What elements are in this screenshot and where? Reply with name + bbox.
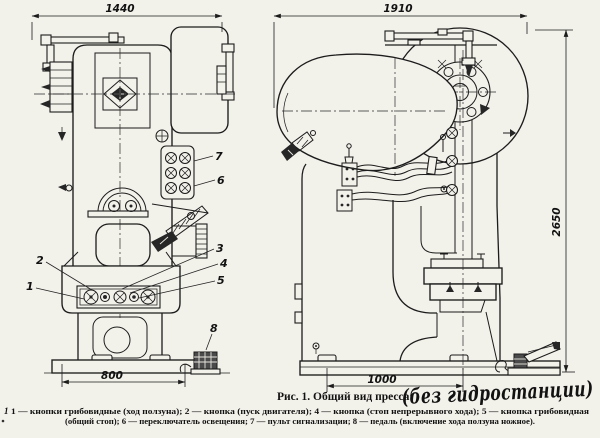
pedestal-front <box>78 313 162 360</box>
body-left-edge <box>295 164 319 363</box>
control-panel <box>77 286 160 308</box>
dim-label-1000: 1000 <box>367 374 396 386</box>
dim-label-1440: 1440 <box>105 3 134 15</box>
callout-5: 5 <box>217 274 225 287</box>
side-view-drawing <box>277 28 560 375</box>
adjusting-screw <box>172 224 207 258</box>
callout-8: 8 <box>210 322 218 335</box>
figure-caption: Рис. 1. Общий вид пресса: <box>277 391 413 403</box>
c-frame <box>393 200 502 361</box>
front-view-drawing <box>34 27 236 374</box>
caption-block: Рис. 1. Общий вид пресса: (без гидростан… <box>2 376 594 426</box>
callout-3: 3 <box>216 242 224 255</box>
callout-1: 1 <box>26 280 34 293</box>
legend-line-1: 1 — кнопки грибовидные (ход ползуна); 2 … <box>11 406 589 416</box>
scanned-manual-page: 1440 1910 2650 800 1000 2 <box>0 0 600 438</box>
callout-4: 4 <box>219 257 228 270</box>
handwritten-note: (без гидростанции) <box>401 376 594 409</box>
signal-console <box>161 146 194 199</box>
dim-label-2650: 2650 <box>551 207 563 236</box>
callout-7: 7 <box>215 150 223 163</box>
dim-label-1910: 1910 <box>383 3 412 15</box>
press-general-view-drawing: 1440 1910 2650 800 1000 2 <box>0 0 600 438</box>
cooling-fins <box>40 62 72 112</box>
legend-line-2: (общий стоп); 6 — переключатель освещени… <box>65 416 535 426</box>
dim-overall-height: 2650 <box>535 30 575 372</box>
dim-label-800: 800 <box>101 370 123 382</box>
callout-2: 2 <box>36 254 44 267</box>
callout-6: 6 <box>217 174 225 187</box>
margin-mark: 1 <box>4 406 9 416</box>
scan-speck <box>2 420 5 423</box>
